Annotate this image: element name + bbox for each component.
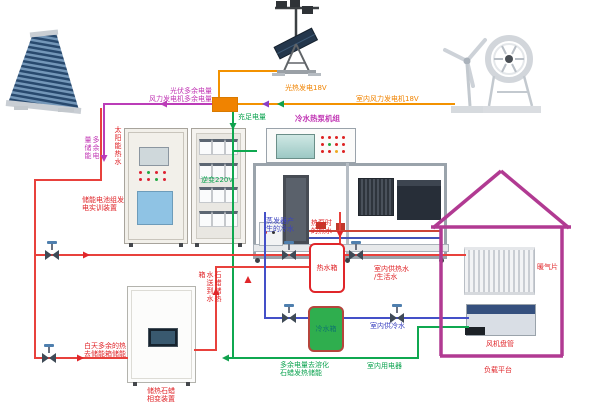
evaporator-coil	[358, 178, 394, 216]
pipe-pv-dc-horizontal	[218, 70, 283, 72]
water-heater-graphic	[137, 191, 173, 225]
bench-top-rail	[253, 163, 447, 166]
paraffin-storage-cabinet	[127, 286, 196, 383]
label-pv-excess: 光伏多余电量	[138, 87, 212, 95]
panel-button	[321, 143, 324, 146]
indicator-light	[155, 171, 158, 174]
indicator-light	[163, 178, 166, 181]
label-day-excess: 白天多余的热 去储能箱储能	[84, 342, 126, 359]
label-indoor-appliances: 室内用电器	[367, 362, 402, 370]
compressor-unit	[283, 175, 309, 244]
label-day-excess-l2: 去储能箱储能	[84, 350, 126, 358]
pipe-220v-main	[232, 111, 234, 359]
panel-button	[342, 136, 345, 139]
label-heat-pump-hot: 热泵时 的热水	[311, 219, 332, 236]
panel-button	[328, 136, 331, 139]
cabinet-foot	[133, 382, 137, 386]
fan-coil-motor	[465, 327, 485, 335]
label-indoor-cold-water: 室内供冷水	[370, 322, 405, 330]
control-cabinet-screen	[139, 147, 169, 166]
solar-collector	[6, 32, 81, 112]
label-solar-hot-water: 太阳能热水	[114, 126, 122, 172]
power-junction-box	[212, 97, 238, 112]
bench-cold-pipe	[309, 237, 441, 239]
wind-blower	[483, 38, 541, 113]
caster-wheel	[255, 258, 260, 263]
panel-button	[335, 143, 338, 146]
pipe-cold-to-fancoil	[264, 317, 469, 319]
label-battery-device-l1: 储能电池组发	[82, 196, 124, 204]
pipe-excess-power-drop	[103, 103, 105, 157]
indicator-light	[163, 171, 166, 174]
pipe-paraffin-to-tank	[215, 266, 310, 268]
valve-icon	[42, 344, 56, 363]
pipe-hot-to-tank-upper	[34, 254, 310, 256]
label-indoor-hot-water: 室内供热水 /生活水	[374, 265, 409, 282]
indicator-light	[147, 178, 150, 181]
pipe-220v-to-heatpump	[232, 150, 257, 152]
pipe-paraffin-outlet	[194, 349, 217, 351]
label-paraffin-device-l1: 储热石蜡	[147, 387, 175, 395]
heat-pump-screen	[276, 134, 315, 159]
cabinet-foot	[129, 243, 133, 247]
label-excess-melt-l2: 石蜡发热储能	[280, 369, 329, 377]
condenser-box	[397, 180, 441, 220]
battery-box	[199, 211, 212, 227]
battery-box	[212, 187, 225, 203]
caster-wheel	[345, 258, 350, 263]
vacuum-tubes	[8, 33, 79, 110]
valve-icon	[282, 304, 296, 323]
heat-pump-control-panel	[266, 128, 356, 163]
panel-button	[335, 136, 338, 139]
label-heat-pump-title: 冷水热泵机组	[295, 115, 340, 124]
pipe-220v-bottom	[224, 357, 419, 359]
pipe-hot-left-riser	[34, 179, 36, 359]
cold-tank-label: 冷水箱	[316, 324, 337, 334]
hot-tank-label: 热水箱	[317, 263, 338, 273]
pipe-220v-to-fancoil	[417, 326, 469, 328]
heat-pump-bench	[253, 127, 447, 263]
bench-post	[253, 163, 256, 255]
paraffin-screen-glow	[151, 331, 175, 344]
cabinet-foot	[186, 382, 190, 386]
pipe-pv-dc-drop	[218, 70, 220, 98]
battery-box	[199, 187, 212, 203]
label-excess-melt: 多余电量去溶化 石蜡发热储能	[280, 361, 329, 378]
radiator	[464, 247, 535, 295]
label-battery-device: 储能电池组发 电实训装置	[82, 196, 124, 213]
pipe-wind-dc	[236, 103, 455, 105]
label-battery-device-l2: 电实训装置	[82, 204, 124, 212]
battery-box	[199, 139, 212, 155]
cabinet-foot	[238, 243, 242, 247]
cold-water-tank: 冷水箱	[308, 306, 344, 352]
label-wind-generation: 室内风力发电机18V	[356, 95, 419, 103]
valve-icon	[390, 304, 404, 323]
control-cabinet	[124, 128, 188, 244]
hot-water-tank: 热水箱	[309, 243, 345, 293]
pipe-220v-riser-house	[417, 327, 419, 359]
panel-button	[342, 150, 345, 153]
battery-box	[212, 211, 225, 227]
label-inverter-220v: 逆变220V	[201, 176, 233, 184]
label-excess-melt-l1: 多余电量去溶化	[280, 361, 329, 369]
fan-coil-top-panel	[467, 305, 535, 314]
label-sufficient-power: 充足电量	[238, 113, 266, 121]
panel-button	[328, 150, 331, 153]
bench-post	[444, 163, 447, 255]
fan-coil-unit	[466, 304, 536, 336]
pv-tracker	[272, 0, 321, 76]
panel-button	[321, 136, 324, 139]
indicator-light	[155, 178, 158, 181]
label-evaporator-cold-l1: 蒸发器产	[266, 217, 294, 225]
cabinet-foot	[179, 243, 183, 247]
pipe-solar-down	[100, 108, 102, 181]
label-radiator: 暖气片	[537, 263, 558, 271]
label-paraffin-device: 储热石蜡 相变装置	[147, 387, 175, 404]
label-load-platform: 负载平台	[484, 366, 512, 374]
label-indoor-hot-l1: 室内供热水	[374, 265, 409, 273]
label-paraffin-riser: 石蜡储热水送到水箱	[198, 271, 222, 309]
caster-wheel	[439, 258, 444, 263]
label-excess-power: 光伏多余电量 风力发电机多余电量	[138, 87, 212, 104]
panel-button	[342, 143, 345, 146]
label-heat-pump-hot-l1: 热泵时	[311, 219, 332, 227]
cabinet-foot	[195, 243, 199, 247]
paraffin-cabinet-screen	[148, 328, 178, 347]
label-indoor-hot-l2: /生活水	[374, 273, 409, 281]
label-evaporator-cold-l2: 生的冷水	[266, 225, 294, 233]
system-diagram: 热水箱 冷水箱	[0, 0, 600, 419]
label-wind-excess: 风力发电机多余电量	[138, 95, 212, 103]
panel-button	[335, 150, 338, 153]
label-excess-storage: 多余电量储能	[84, 136, 100, 163]
label-pv-generation: 光热发电18V	[285, 84, 327, 92]
indicator-light	[147, 171, 150, 174]
label-day-excess-l1: 白天多余的热	[84, 342, 126, 350]
panel-button	[321, 150, 324, 153]
flow-arrow-up-icon	[245, 276, 252, 283]
label-evaporator-cold: 蒸发器产 生的冷水	[266, 217, 294, 234]
battery-cabinet	[191, 128, 246, 244]
bench-bottom-rail	[253, 256, 447, 259]
indicator-light	[139, 178, 142, 181]
pipe-solar-jog	[34, 179, 102, 181]
battery-box	[212, 139, 225, 155]
label-heat-pump-hot-l2: 的热水	[311, 227, 332, 235]
pipe-hot-to-radiator	[341, 254, 466, 256]
valve-icon	[45, 241, 59, 260]
panel-button	[328, 143, 331, 146]
bench-post	[346, 163, 349, 255]
pipe-heatpump-hot-drop	[339, 212, 341, 244]
label-fan-coil: 风机盘管	[486, 340, 514, 348]
label-paraffin-device-l2: 相变装置	[147, 395, 175, 403]
indicator-light	[139, 171, 142, 174]
